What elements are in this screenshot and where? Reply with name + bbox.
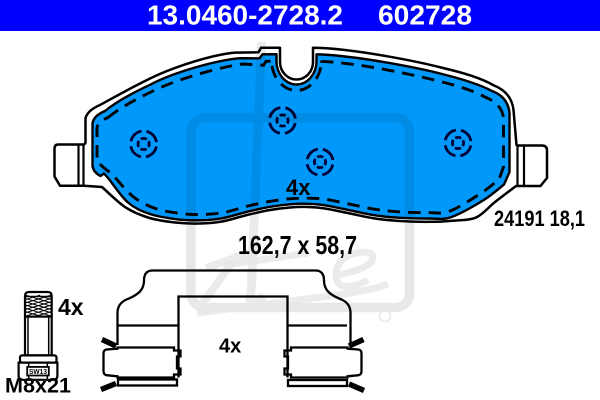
svg-text:M8x21: M8x21 bbox=[5, 375, 71, 398]
svg-text:602728: 602728 bbox=[378, 0, 472, 31]
svg-text:4x: 4x bbox=[219, 336, 241, 358]
svg-text:4x: 4x bbox=[286, 175, 311, 200]
svg-text:13.0460-2728.2: 13.0460-2728.2 bbox=[147, 0, 343, 31]
svg-text:24191 18,1: 24191 18,1 bbox=[494, 206, 585, 231]
svg-text:4x: 4x bbox=[58, 294, 84, 320]
